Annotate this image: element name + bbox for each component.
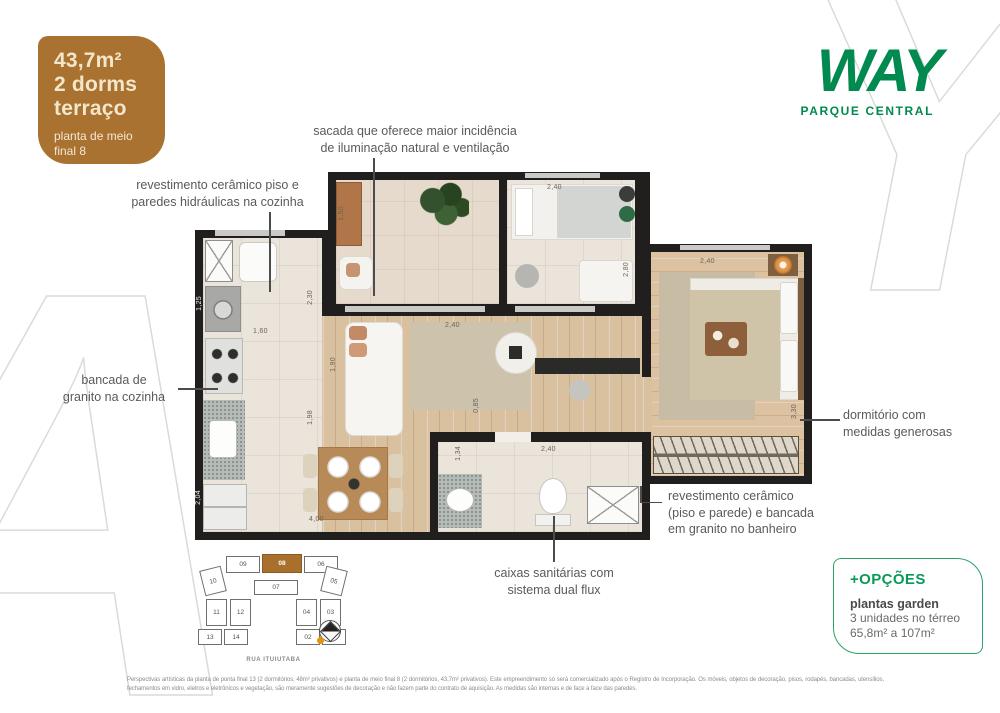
desk-console <box>535 358 640 374</box>
compass-icon <box>317 619 343 645</box>
options-line-3: 65,8m² a 107m² <box>850 626 970 641</box>
leader-kitchen-tiles <box>269 212 271 292</box>
floor-plan: 1,50 1,60 2,30 1,25 2,04 2,40 1,90 4,00 … <box>195 172 812 542</box>
keyplan-unit: 07 <box>254 580 298 595</box>
wardrobe <box>653 436 799 474</box>
keyplan-unit: 09 <box>226 556 260 573</box>
stove <box>205 338 243 394</box>
keyplan-unit: 05 <box>320 566 348 597</box>
options-box: +OPÇÕES plantas garden 3 unidades no tér… <box>833 558 983 654</box>
annotation-toilet: caixas sanitárias com sistema dual flux <box>478 565 630 598</box>
dim-bed1-w: 2,40 <box>547 184 562 191</box>
annotation-bathroom: revestimento cerâmico (piso e parede) e … <box>668 488 848 538</box>
options-title: +OPÇÕES <box>850 571 970 588</box>
dim-dining-h: 1,98 <box>307 410 314 425</box>
brand-tagline: PARQUE CENTRAL <box>762 104 934 118</box>
shelf-object <box>619 186 635 202</box>
street-label: RUA ITUIUTABA <box>196 657 351 663</box>
brochure-page: A Y 43,7m² 2 dorms terraço planta de mei… <box>0 0 1000 713</box>
plant <box>417 182 469 226</box>
bathroom-door-gap <box>495 432 531 442</box>
desk-chair <box>515 264 539 288</box>
leader-balcony <box>373 158 375 296</box>
dim-kitchen-w: 1,60 <box>253 328 268 335</box>
badge-note-1: planta de meio <box>54 129 155 144</box>
area-badge: 43,7m² 2 dorms terraço planta de meio fi… <box>38 36 165 164</box>
dining-chair-2 <box>303 488 317 512</box>
sofa-pillow <box>349 326 367 340</box>
badge-terrace: terraço <box>54 97 155 121</box>
bedroom2-door-gap <box>642 377 652 432</box>
single-bed-pillow <box>515 188 533 236</box>
badge-area: 43,7m² <box>54 49 155 73</box>
breakfast-tray <box>705 322 747 356</box>
dim-bed2-h: 3,30 <box>791 404 798 419</box>
dim-hall-a: 0,85 <box>473 398 480 413</box>
keyplan-unit: 12 <box>230 599 251 626</box>
bathroom-wall-left <box>430 432 438 540</box>
dim-dining-w: 4,00 <box>309 516 324 523</box>
keyplan-unit: 10 <box>199 566 227 597</box>
keyplan-unit-highlighted: 08 <box>262 554 302 573</box>
brand-logo: WAY PARQUE CENTRAL <box>762 40 940 118</box>
compass-dot <box>317 637 324 644</box>
balcony-slider <box>345 306 485 312</box>
leader-toilet <box>553 516 555 562</box>
armchair-cushion <box>346 263 360 277</box>
bedroom1-window <box>525 173 600 178</box>
fridge <box>203 484 247 530</box>
dim-kitchen-h: 2,30 <box>307 290 314 305</box>
dining-table <box>318 447 388 520</box>
laundry-sink <box>239 242 277 282</box>
options-line-2: 3 unidades no térreo <box>850 611 970 626</box>
headboard <box>798 278 804 400</box>
kitchen-window <box>215 230 285 236</box>
shower-box <box>587 486 639 524</box>
annotation-kitchen-counter: bancada de granito na cozinha <box>55 372 173 405</box>
dim-washer: 1,25 <box>196 296 203 311</box>
keyplan-unit: 11 <box>206 599 227 626</box>
disclaimer-text: Perspectivas artísticas da planta de pon… <box>127 676 884 694</box>
dim-sofa: 1,90 <box>330 357 337 372</box>
annotation-balcony: sacada que oferece maior incidência de i… <box>290 123 540 156</box>
console-chair <box>569 380 590 401</box>
bathroom-wall-top <box>430 432 650 442</box>
dim-bath-w: 2,40 <box>541 446 556 453</box>
toilet <box>539 478 567 514</box>
leader-bedroom <box>800 419 840 421</box>
bed-pillow <box>780 282 798 334</box>
options-subtitle: plantas garden <box>850 597 970 611</box>
annotation-kitchen-tiles: revestimento cerâmico piso e paredes hid… <box>110 177 325 210</box>
annotation-bedroom: dormitório com medidas generosas <box>843 407 988 440</box>
vanity-sink <box>446 488 474 512</box>
dim-fridge: 2,04 <box>195 490 202 505</box>
dining-chair-3 <box>389 454 403 478</box>
bedroom2-window <box>680 245 770 250</box>
laundry-tank-box <box>205 240 233 282</box>
badge-note-2: final 8 <box>54 144 155 159</box>
badge-dorms: 2 dorms <box>54 73 155 97</box>
washer <box>205 286 241 332</box>
keyplan-unit: 14 <box>224 629 248 645</box>
lamp <box>774 256 792 274</box>
keyplan-unit: 04 <box>296 599 317 626</box>
dining-chair-4 <box>389 488 403 512</box>
dim-bed1-h: 2,80 <box>623 262 630 277</box>
bedroom1-slider <box>515 306 595 312</box>
brand-name: WAY <box>762 40 940 102</box>
leader-kitchen-counter <box>178 388 218 390</box>
dim-hall-b: 1,34 <box>455 446 462 461</box>
dining-chair <box>303 454 317 478</box>
kitchen-sink <box>209 420 237 458</box>
keyplan-unit: 13 <box>198 629 222 645</box>
bed-pillow-2 <box>780 340 798 392</box>
dim-bed2-w: 2,40 <box>700 258 715 265</box>
shelf-plant <box>619 206 635 222</box>
coffee-table-tray <box>509 346 522 359</box>
dim-balcony-h: 1,50 <box>338 206 345 221</box>
leader-bathroom-v <box>640 486 642 503</box>
leader-bathroom-h <box>640 502 662 504</box>
dim-living-w: 2,40 <box>445 322 460 329</box>
sofa-pillow-2 <box>349 343 367 357</box>
